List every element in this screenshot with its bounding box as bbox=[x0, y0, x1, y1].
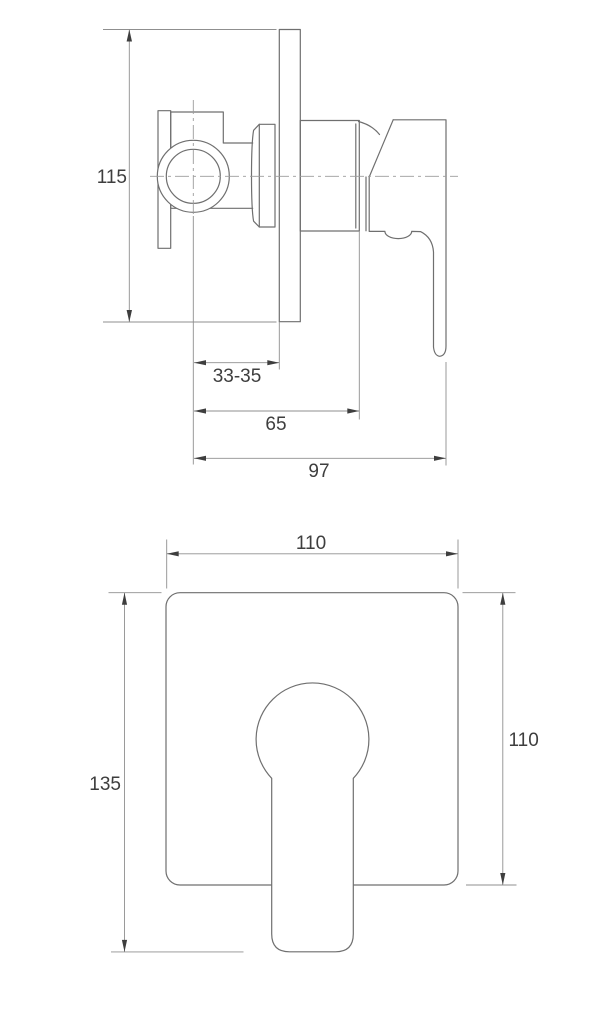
dim-label-110-width: 110 bbox=[296, 533, 326, 554]
arrowhead-right bbox=[434, 456, 446, 461]
arrowhead-left bbox=[194, 360, 206, 365]
cartridge-flange bbox=[259, 124, 275, 227]
arrowhead-right bbox=[347, 408, 359, 413]
dim-label-115: 115 bbox=[97, 167, 127, 188]
arrowhead-right bbox=[446, 551, 458, 556]
escutcheon-side bbox=[300, 121, 359, 232]
arrowhead-down bbox=[127, 310, 132, 322]
front-view: 110 135 110 bbox=[89, 533, 539, 952]
side-view: 115 33-35 65 97 bbox=[97, 30, 458, 483]
wall-plate-side bbox=[279, 30, 300, 322]
arrowhead-down bbox=[500, 873, 505, 885]
arrowhead-up bbox=[127, 30, 132, 42]
handle-collar-diagonal bbox=[369, 120, 393, 231]
dim-label-110-height: 110 bbox=[509, 730, 539, 751]
arrowhead-down bbox=[122, 940, 127, 952]
arrowhead-right bbox=[267, 360, 279, 365]
lever-handle-side bbox=[369, 120, 446, 356]
cartridge-flange-cap bbox=[252, 124, 260, 227]
handle-collar-arc bbox=[359, 122, 380, 135]
drawing-canvas: 115 33-35 65 97 bbox=[0, 0, 612, 1024]
arrowhead-up bbox=[122, 593, 127, 605]
arrowhead-left bbox=[194, 456, 206, 461]
lever-handle-front bbox=[256, 683, 369, 952]
dim-label-135: 135 bbox=[89, 774, 121, 795]
arrowhead-up bbox=[500, 593, 505, 605]
dim-label-33-35: 33-35 bbox=[213, 366, 262, 387]
arrowhead-left bbox=[194, 408, 206, 413]
dim-label-97: 97 bbox=[308, 461, 329, 482]
technical-drawing: 115 33-35 65 97 bbox=[0, 0, 612, 1024]
arrowhead-left bbox=[167, 551, 179, 556]
dim-label-65: 65 bbox=[265, 414, 286, 435]
